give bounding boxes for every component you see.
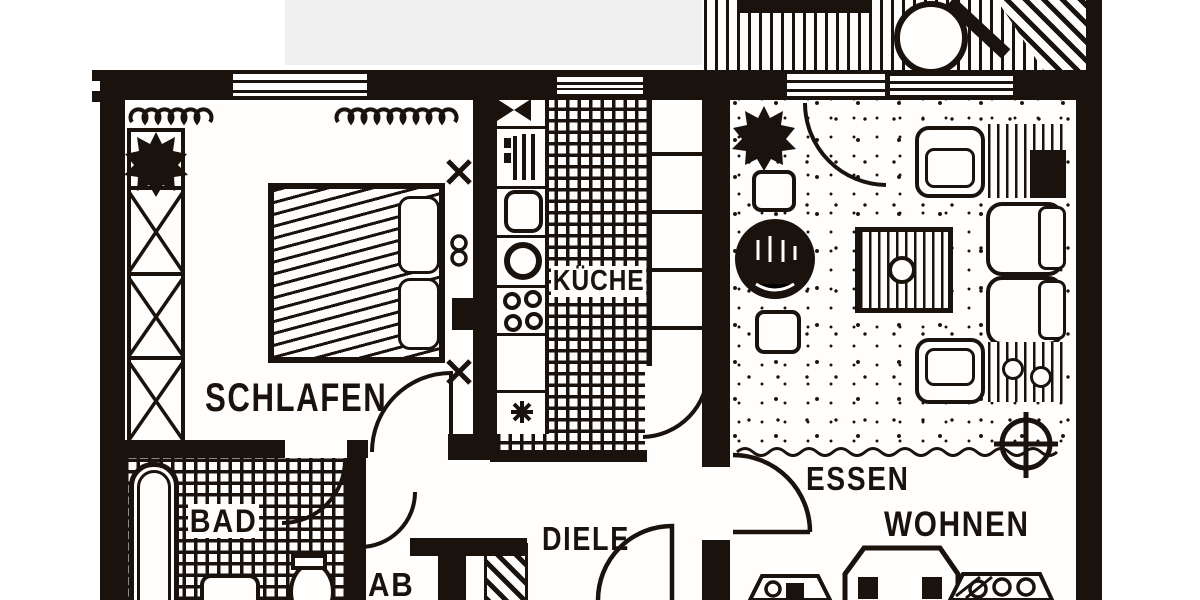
dining-table-leg — [858, 577, 878, 599]
plant-icon — [124, 132, 188, 197]
double-socket-icon — [452, 236, 466, 250]
door-swing-ab — [360, 492, 415, 547]
sink-bowl-icon — [507, 245, 539, 277]
hob-burner-icon — [506, 316, 520, 330]
dining-chair-detail — [786, 583, 804, 598]
double-socket-icon — [452, 251, 466, 265]
floor-plan-canvas: SCHLAFEN KÜCHE BAD DIELE AB ESSEN WOHNEN — [0, 0, 1200, 600]
boiler-star-icon — [511, 401, 533, 423]
dining-chair-detail — [994, 579, 1010, 595]
dishwasher-icon — [515, 134, 533, 180]
room-label-bad: BAD — [188, 504, 259, 538]
door-swing-living — [805, 103, 886, 185]
parasol-bar-icon — [950, 2, 1006, 54]
door-swing-bath — [282, 460, 345, 523]
living-floor-edge — [737, 449, 1057, 456]
room-label-schlafen: SCHLAFEN — [205, 378, 387, 418]
hob-burner-icon — [505, 294, 519, 308]
radiator-icon — [131, 109, 212, 122]
dishwasher-icon — [504, 138, 511, 148]
room-label-ab: AB — [368, 568, 415, 600]
toilet-cistern — [293, 556, 325, 568]
wardrobe-x-icon — [129, 192, 183, 440]
outlet-cross-icon — [448, 161, 470, 183]
room-label-essen: ESSEN — [806, 462, 910, 495]
dining-chair-detail — [1018, 579, 1034, 595]
sink-icon — [506, 192, 541, 231]
round-table-texture — [756, 236, 795, 290]
vent-bowtie-icon — [497, 99, 531, 121]
room-label-wohnen: WOHNEN — [884, 507, 1030, 542]
door-swing-kitchen — [643, 370, 708, 437]
room-label-kueche: KÜCHE — [551, 266, 646, 297]
ceiling-outlet-icon — [994, 412, 1058, 478]
dining-table-leg — [922, 577, 942, 599]
dining-set — [750, 548, 1052, 600]
hob-burner-icon — [527, 314, 541, 328]
room-label-diele: DIELE — [542, 522, 630, 555]
plant-icon — [732, 106, 796, 171]
dining-chair-detail — [766, 582, 780, 596]
dishwasher-icon — [504, 153, 511, 163]
door-swing-dining — [733, 455, 810, 532]
hob-burner-icon — [526, 292, 540, 306]
radiator-icon — [337, 109, 457, 122]
